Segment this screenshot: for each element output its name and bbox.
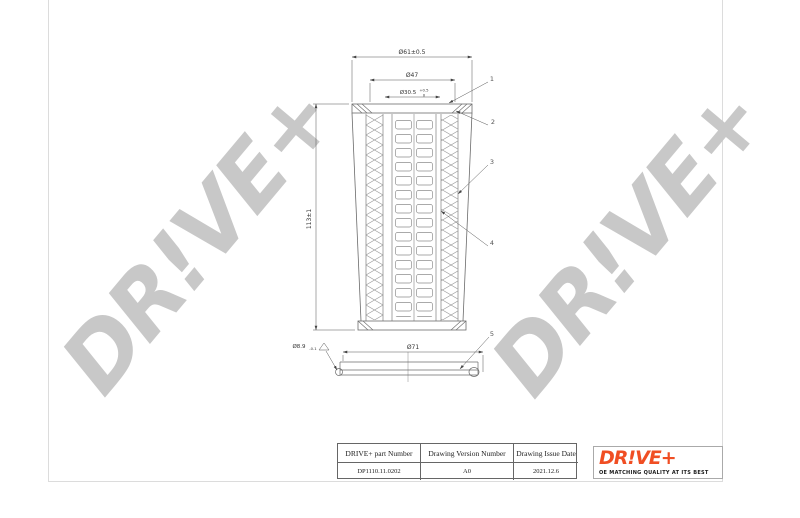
bottom-plate-view: [336, 352, 480, 382]
callout-3: 3: [490, 158, 494, 166]
version-number-header: Drawing Version Number: [421, 444, 514, 463]
callout-2: 2: [491, 118, 495, 126]
filter-technical-drawing: Ø61±0.5 Ø47 Ø30.5 +0.5 0 113±1 Ø71 Ø8.9 …: [0, 0, 800, 518]
issue-date-value: 2021.12.6: [514, 463, 578, 480]
dim-mid-diameter: Ø47: [406, 72, 419, 79]
callout-5: 5: [490, 330, 494, 338]
version-number-value: A0: [421, 463, 514, 480]
brand-logo-text: DR!VE+: [599, 449, 676, 468]
title-block: DRIVE+ part Number Drawing Version Numbe…: [337, 443, 577, 479]
centre-tube-slots: [394, 119, 435, 317]
drawing-page: DR!VE+ DR!VE+: [0, 0, 800, 518]
callout-1: 1: [490, 75, 494, 83]
dim-hole-diameter: Ø8.9: [292, 343, 306, 350]
dim-height: 113±1: [306, 209, 313, 229]
callout-4: 4: [490, 239, 494, 247]
dim-bottom-diameter: Ø71: [407, 344, 420, 351]
dim-outer-diameter: Ø61±0.5: [399, 49, 426, 56]
issue-date-header: Drawing Issue Date: [514, 444, 578, 463]
part-number-header: DRIVE+ part Number: [338, 444, 421, 463]
part-number-value: DP1110.11.0202: [338, 463, 421, 480]
pleat-media-left: [366, 115, 383, 320]
callout-numbers: 1 2 3 4 5: [490, 75, 495, 338]
dim-inner-diameter: Ø30.5: [400, 89, 417, 96]
brand-tagline: OE MATCHING QUALITY AT ITS BEST: [599, 470, 709, 476]
dim-hole-tol: -0.1: [309, 346, 317, 351]
brand-logo-box: DR!VE+ OE MATCHING QUALITY AT ITS BEST: [593, 446, 723, 479]
